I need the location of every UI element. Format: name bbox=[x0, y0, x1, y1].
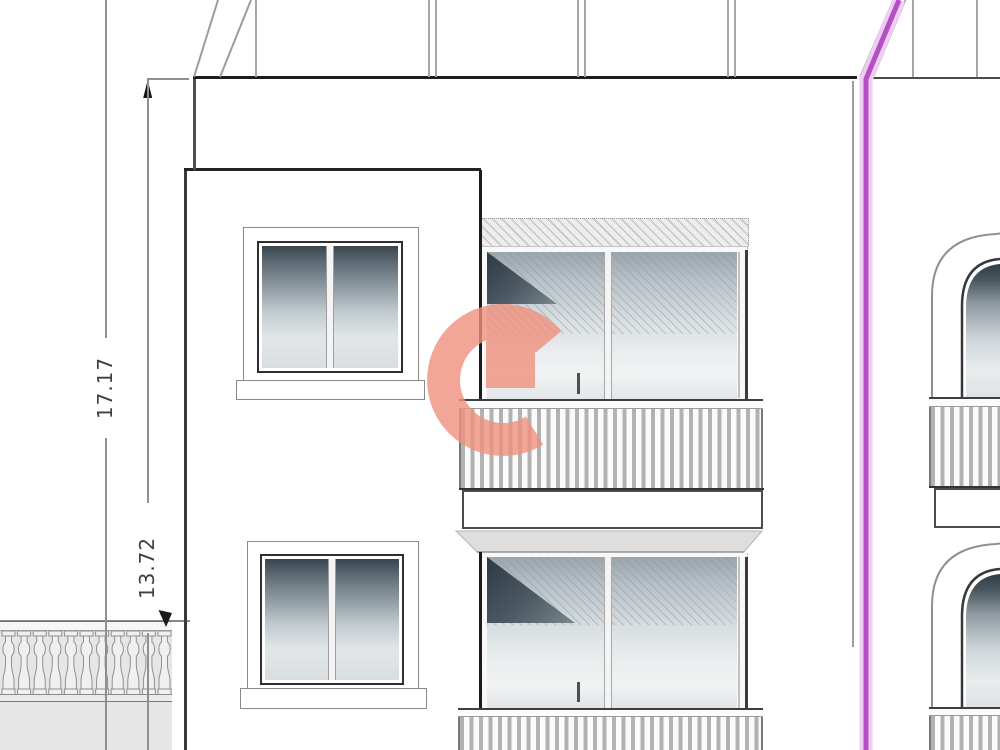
right-balcony-upper-slab bbox=[934, 488, 1000, 528]
roof-post bbox=[976, 0, 978, 77]
window-pane bbox=[334, 246, 398, 368]
roof-post bbox=[912, 0, 914, 77]
balcony-lower-balusters bbox=[458, 717, 763, 750]
door-handle bbox=[577, 682, 580, 702]
dimension-label-13-72: 13.72 bbox=[124, 503, 170, 633]
arched-window-upper-frame bbox=[962, 259, 1000, 399]
arched-window-upper-outline bbox=[932, 234, 1000, 400]
glazing-edge-left bbox=[479, 552, 482, 709]
slab-underside-shadow bbox=[456, 531, 762, 552]
boundary-gray-flank bbox=[873, 0, 906, 79]
glazing-edge-right bbox=[745, 557, 748, 708]
window-pane bbox=[336, 559, 399, 680]
roof-edge-vertical bbox=[193, 79, 196, 170]
property-boundary-line bbox=[866, 0, 899, 750]
facade-top-edge bbox=[184, 168, 481, 171]
arched-window-lower-outline bbox=[932, 544, 1000, 710]
glazing-edge-gray bbox=[738, 557, 740, 708]
glazing-edge-right bbox=[745, 250, 748, 399]
roof-post bbox=[577, 0, 579, 77]
roof-post bbox=[255, 0, 257, 77]
logo-bar bbox=[486, 335, 535, 388]
balcony-lower-rail bbox=[458, 708, 763, 717]
right-balcony-upper-balusters bbox=[929, 407, 1000, 487]
balcony-upper-slab bbox=[462, 490, 763, 529]
balcony-lower-mullion bbox=[604, 557, 612, 708]
eave-line-dark bbox=[193, 76, 857, 79]
property-boundary-glow bbox=[866, 0, 899, 750]
party-wall-gray-line bbox=[852, 81, 854, 647]
window-lower-frame bbox=[260, 554, 404, 685]
window-mullion bbox=[328, 559, 336, 680]
boundary-gray-flank bbox=[860, 0, 893, 77]
terrace-balusters bbox=[0, 631, 175, 695]
dimension-line-17 bbox=[105, 438, 107, 750]
window-upper-sill bbox=[236, 380, 425, 400]
elevation-drawing-canvas: 17.17 13.72 bbox=[0, 0, 1000, 750]
roof-post bbox=[428, 0, 430, 77]
dimension-line-13 bbox=[147, 79, 149, 503]
window-upper-frame bbox=[257, 241, 403, 373]
right-balcony-upper-rail bbox=[929, 397, 1000, 407]
window-lower-sill bbox=[240, 688, 427, 709]
arched-window-lower-frame bbox=[962, 569, 1000, 709]
watermark-logo bbox=[405, 283, 605, 483]
roof-post bbox=[734, 0, 736, 77]
eave-line-right bbox=[872, 77, 1000, 79]
window-pane bbox=[262, 246, 326, 368]
window-mullion bbox=[326, 246, 334, 368]
dimension-line-17 bbox=[105, 0, 107, 338]
right-balcony-lower-balusters bbox=[929, 716, 1000, 750]
right-balcony-lower-rail bbox=[929, 707, 1000, 716]
dimension-line-13 bbox=[147, 633, 149, 750]
facade-left-edge bbox=[184, 170, 187, 750]
roof-slope-line bbox=[194, 0, 218, 77]
balcony-upper-lintel-hatch bbox=[482, 218, 749, 247]
dimension-label-17-17: 17.17 bbox=[82, 338, 128, 438]
roof-slope-line bbox=[220, 0, 251, 77]
window-pane bbox=[265, 559, 328, 680]
roof-post bbox=[435, 0, 437, 77]
glazing-edge-gray bbox=[738, 252, 740, 398]
arched-window-upper-glass bbox=[966, 264, 1000, 397]
balcony-upper-mullion bbox=[604, 252, 612, 399]
arched-window-lower-glass bbox=[966, 574, 1000, 707]
roof-post bbox=[727, 0, 729, 77]
dimension-tick bbox=[147, 78, 189, 80]
roof-post bbox=[584, 0, 586, 77]
